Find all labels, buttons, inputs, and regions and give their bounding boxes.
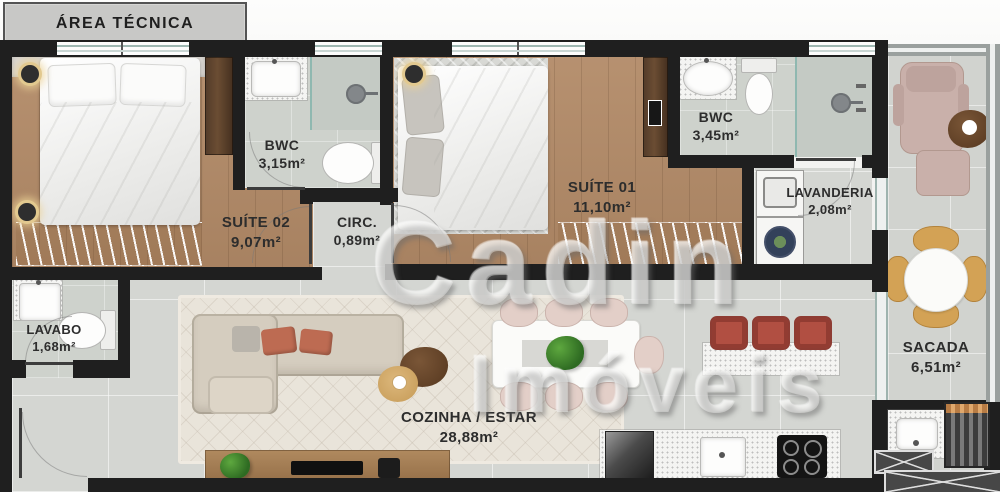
door-bwc-suite-02 <box>247 187 305 190</box>
wall-segment <box>73 360 130 378</box>
bar-stool <box>752 316 790 350</box>
duvet-suite-02 <box>40 102 200 225</box>
room-label-lavanderia: LAVANDERIA 2,08m² <box>766 185 894 219</box>
window <box>313 42 384 55</box>
shower-head <box>831 93 851 113</box>
room-label-lavabo: LAVABO 1,68m² <box>13 322 95 356</box>
tv <box>291 461 363 475</box>
toilet-tank <box>741 58 777 73</box>
room-name: LAVANDERIA <box>766 185 894 202</box>
room-label-suite-01: SUÍTE 01 11,10m² <box>540 178 664 217</box>
door-lavanderia <box>796 158 856 161</box>
plant-centerpiece <box>546 336 584 370</box>
room-area: 3,15m² <box>232 154 332 172</box>
rug-suite-01 <box>558 222 746 266</box>
glass-door-sacada <box>875 292 888 400</box>
sink <box>19 283 61 321</box>
room-area: 6,51m² <box>894 358 978 378</box>
cooktop <box>777 435 827 478</box>
sacada-railing-top <box>888 44 986 56</box>
lounge-armrest <box>893 84 904 126</box>
speaker <box>378 458 400 478</box>
side-table-tray <box>392 375 407 390</box>
sink <box>251 61 301 97</box>
wall-segment <box>12 267 322 280</box>
refrigerator <box>605 431 654 480</box>
towel-hook <box>856 108 866 112</box>
wall-segment <box>380 55 393 205</box>
washing-machine <box>756 217 804 267</box>
window <box>807 42 877 55</box>
dining-chair <box>590 382 628 411</box>
lounge-headrest <box>906 66 956 92</box>
rug-suite-02 <box>16 222 202 266</box>
dining-chair <box>500 298 538 327</box>
pillow <box>119 63 186 107</box>
room-name: BWC <box>674 108 758 126</box>
room-area: 11,10m² <box>540 198 664 218</box>
room-area: 1,68m² <box>13 339 95 356</box>
room-area: 0,89m² <box>317 231 397 249</box>
room-label-suite-02: SUÍTE 02 9,07m² <box>196 213 316 252</box>
dining-chair <box>634 336 664 374</box>
faucet <box>704 58 709 63</box>
plant <box>220 453 250 479</box>
room-area: 3,45m² <box>674 126 758 144</box>
faucet <box>913 440 919 446</box>
shower-head <box>346 84 366 104</box>
room-label-bwc-suite-01: BWC 3,45m² <box>674 108 758 144</box>
wall-segment <box>872 230 888 292</box>
dining-chair <box>545 382 583 411</box>
towel-hook <box>856 84 866 88</box>
room-label-sacada: SACADA 6,51m² <box>894 338 978 377</box>
wardrobe-suite-02 <box>205 57 233 155</box>
sofa-pillow <box>299 328 333 355</box>
room-name: SUÍTE 01 <box>540 178 664 198</box>
duct-shaft <box>884 470 1000 492</box>
ceiling-light <box>402 62 426 86</box>
dining-chair <box>590 298 628 327</box>
floor-plan: ÁREA TÉCNICA <box>0 0 1000 492</box>
room-label-circ: CIRC. 0,89m² <box>317 213 397 249</box>
wall-segment <box>742 168 754 268</box>
entry-door <box>19 408 22 478</box>
room-area: 2,08m² <box>766 202 894 219</box>
balcony-table <box>904 248 968 312</box>
window <box>55 42 191 55</box>
wall-segment <box>12 360 26 378</box>
bar-stool <box>794 316 832 350</box>
ceiling-light <box>18 62 42 86</box>
area-tecnica-label: ÁREA TÉCNICA <box>5 15 245 33</box>
sofa-chaise-cushion <box>208 376 274 414</box>
wall-segment <box>668 155 794 168</box>
bar-stool <box>710 316 748 350</box>
room-label-cozinha-estar: COZINHA / ESTAR 28,88m² <box>386 408 552 447</box>
wall-segment <box>385 264 888 280</box>
faucet <box>719 452 725 458</box>
wall-segment <box>300 188 313 204</box>
pillow <box>47 63 116 107</box>
wardrobe-handle <box>648 100 662 126</box>
shower-arm <box>364 92 378 95</box>
sofa-pillow <box>261 326 298 356</box>
room-name: CIRC. <box>317 213 397 231</box>
duvet-suite-01 <box>434 68 548 228</box>
ceiling-light <box>15 200 39 224</box>
room-name: SUÍTE 02 <box>196 213 316 233</box>
room-name: LAVABO <box>13 322 95 339</box>
wall-segment <box>0 40 12 492</box>
room-area: 28,88m² <box>386 428 552 448</box>
door-lavabo <box>25 362 73 365</box>
wall-segment <box>88 478 1000 492</box>
sacada-railing-right <box>986 44 1000 402</box>
room-label-bwc-suite-02: BWC 3,15m² <box>232 136 332 172</box>
dining-chair <box>500 382 538 411</box>
window <box>450 42 587 55</box>
wall-segment <box>872 44 888 178</box>
side-table-tray <box>962 120 977 135</box>
room-name: COZINHA / ESTAR <box>386 408 552 428</box>
room-name: BWC <box>232 136 332 154</box>
sink <box>683 61 733 96</box>
shower-arm <box>849 101 863 104</box>
room-area: 9,07m² <box>196 233 316 253</box>
dining-chair <box>545 298 583 327</box>
room-name: SACADA <box>894 338 978 358</box>
barbecue-grill <box>944 402 990 468</box>
sofa-pillow <box>232 326 260 352</box>
ottoman <box>916 150 970 196</box>
faucet <box>36 280 41 285</box>
faucet <box>272 59 277 64</box>
